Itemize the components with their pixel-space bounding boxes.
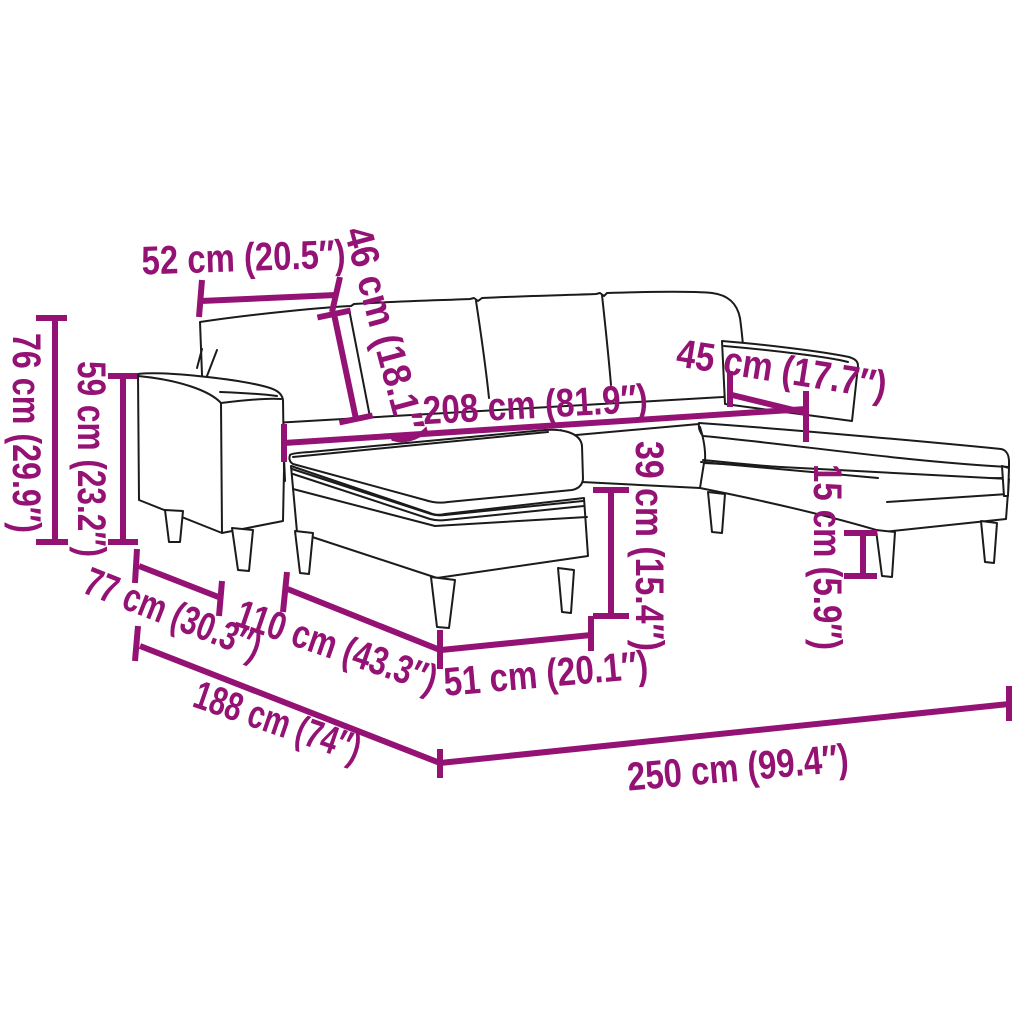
svg-text:76 cm (29.9″): 76 cm (29.9″) xyxy=(4,333,48,533)
svg-text:59 cm (23.2″): 59 cm (23.2″) xyxy=(69,361,113,557)
svg-text:15 cm (5.9″): 15 cm (5.9″) xyxy=(805,464,849,650)
svg-text:52 cm (20.5″): 52 cm (20.5″) xyxy=(141,232,346,283)
svg-text:39 cm (15.4″): 39 cm (15.4″) xyxy=(627,441,671,651)
